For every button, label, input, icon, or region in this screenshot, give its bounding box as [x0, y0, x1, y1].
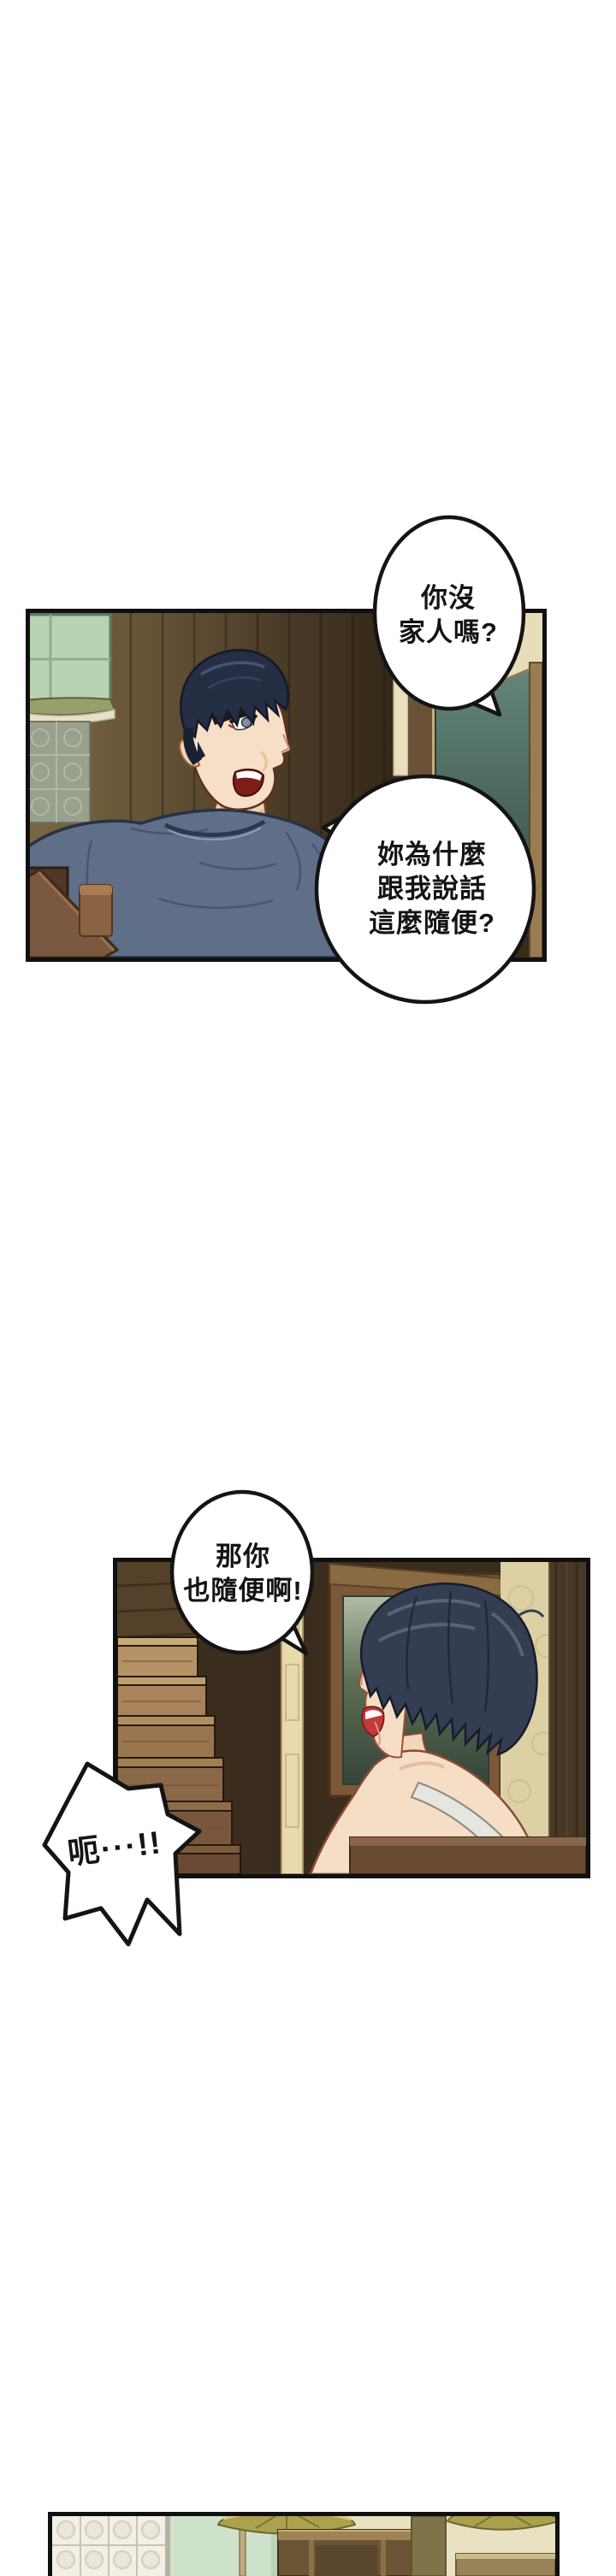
green-cabinet [30, 615, 115, 723]
speech-line: 妳為什麼 [377, 838, 487, 872]
speech-text-3: 那你 也隨便啊! [169, 1488, 317, 1660]
wood-cabinet [278, 2530, 412, 2576]
door-frame-olive [412, 2516, 446, 2576]
speech-line: 這麼隨便? [369, 906, 495, 940]
chair-back-rail [350, 1837, 586, 1874]
speech-line: 跟我說話 [377, 872, 487, 906]
counter-beam [456, 2554, 555, 2576]
speech-bubble-3: 那你 也隨便啊! [169, 1488, 317, 1660]
speech-line: 也隨便啊! [183, 1574, 302, 1608]
speech-text-1: 你沒 家人嗎? [368, 513, 522, 718]
panel-3 [48, 2512, 560, 2576]
burst-bubble: 呃···!! [38, 1741, 202, 1951]
curtain [549, 1562, 586, 1874]
tile-wall [52, 2516, 170, 2576]
speech-bubble-1: 你沒 家人嗎? [368, 513, 522, 718]
burst-text: 呃···!! [21, 1734, 210, 1963]
speech-bubble-2: 妳為什麼 跟我說話 這麼隨便? [313, 772, 541, 1006]
speech-line: 你沒 [421, 581, 476, 616]
speech-text-2: 妳為什麼 跟我說話 這麼隨便? [313, 772, 541, 1006]
speech-line: 呃···!! [66, 1825, 164, 1871]
speech-line: 家人嗎? [399, 616, 498, 650]
speech-line: 那你 [216, 1540, 270, 1574]
comic-page: { "page": {"width": 720, "height": 3008,… [0, 0, 616, 2572]
glass-block-tiles [30, 722, 90, 822]
panel-3-art [52, 2516, 555, 2576]
